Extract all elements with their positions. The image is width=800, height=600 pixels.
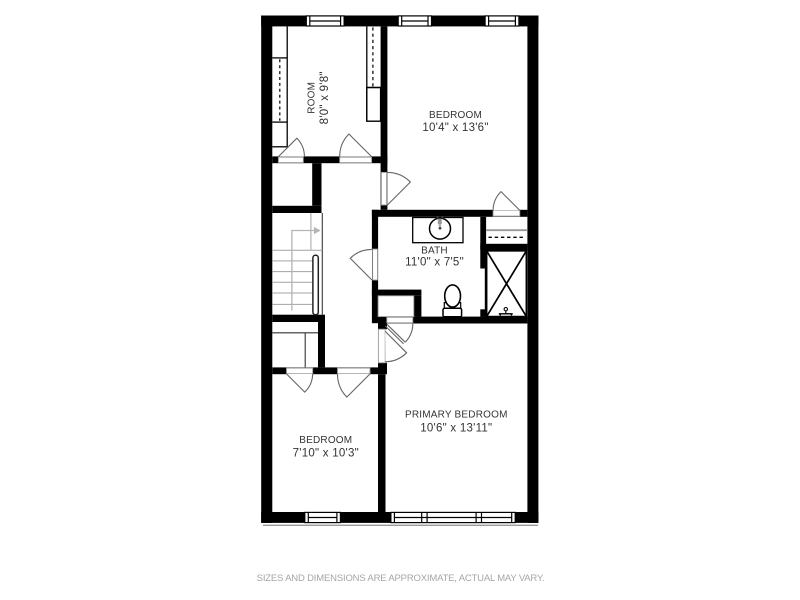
svg-text:11'0" x 7'5": 11'0" x 7'5" [405, 257, 464, 269]
svg-text:BEDROOM: BEDROOM [429, 110, 482, 121]
svg-text:BEDROOM: BEDROOM [299, 435, 352, 446]
svg-text:ROOM: ROOM [306, 82, 317, 114]
svg-text:BATH: BATH [421, 245, 448, 256]
svg-text:SIZES AND DIMENSIONS ARE APPRO: SIZES AND DIMENSIONS ARE APPROXIMATE, AC… [257, 573, 545, 584]
svg-text:10'6" x 13'11": 10'6" x 13'11" [420, 422, 492, 434]
svg-text:PRIMARY BEDROOM: PRIMARY BEDROOM [405, 409, 508, 420]
svg-text:8'0" x 9'8": 8'0" x 9'8" [319, 71, 331, 124]
svg-text:7'10" x 10'3": 7'10" x 10'3" [293, 447, 359, 459]
svg-text:10'4" x 13'6": 10'4" x 13'6" [422, 122, 488, 134]
